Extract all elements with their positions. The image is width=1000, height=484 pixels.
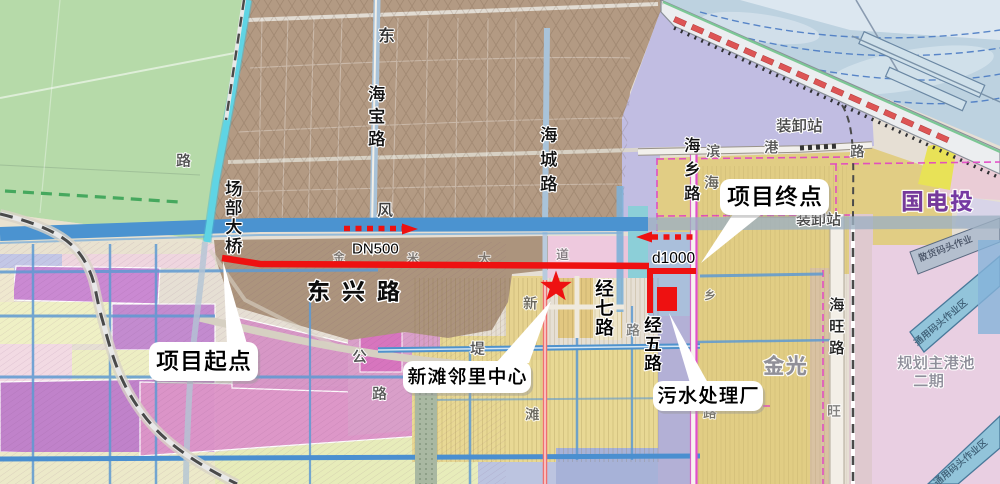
svg-text:DN500: DN500	[352, 241, 399, 258]
svg-text:d1000: d1000	[652, 250, 695, 267]
